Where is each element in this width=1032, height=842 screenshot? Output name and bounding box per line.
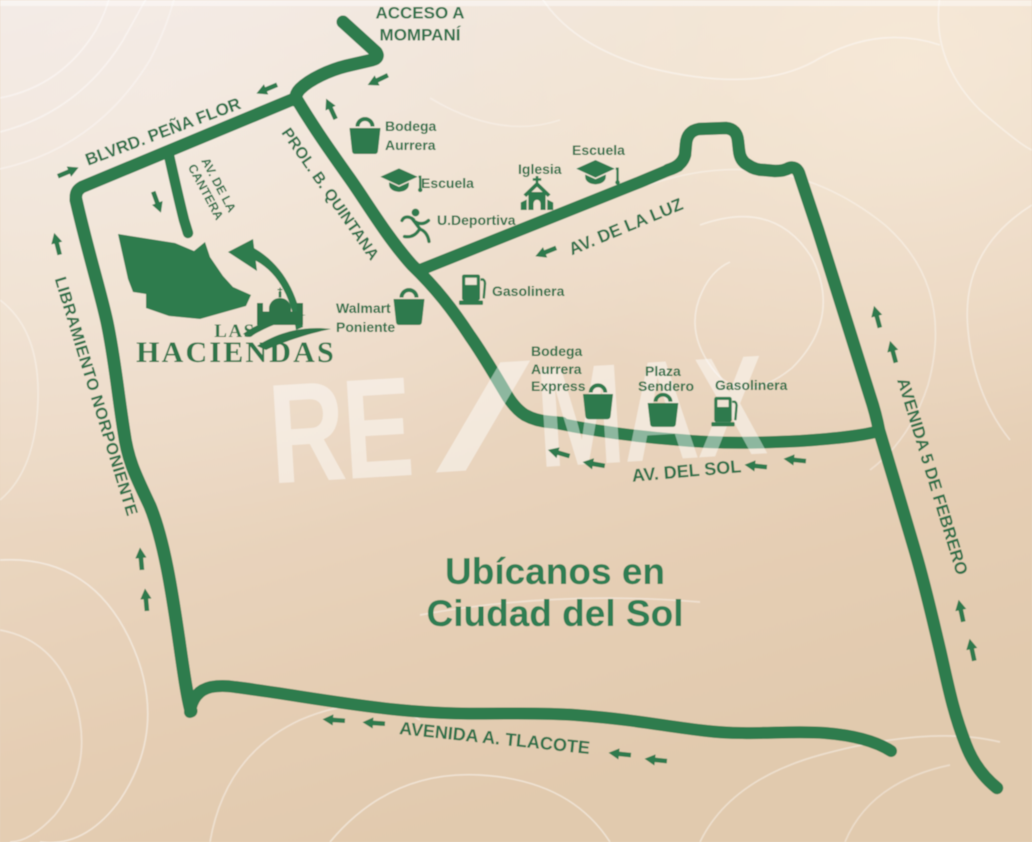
svg-text:Ubícanos en: Ubícanos en xyxy=(445,551,665,592)
svg-text:Gasolinera: Gasolinera xyxy=(492,283,565,299)
svg-text:Escuela: Escuela xyxy=(421,175,474,191)
svg-text:U.Deportiva: U.Deportiva xyxy=(437,212,516,228)
svg-text:Ciudad del Sol: Ciudad del Sol xyxy=(427,593,684,634)
svg-text:Bodega: Bodega xyxy=(385,118,437,134)
svg-text:MOMPANÍ: MOMPANÍ xyxy=(380,26,462,45)
svg-text:ACCESO A: ACCESO A xyxy=(375,4,464,23)
svg-text:Gasolinera: Gasolinera xyxy=(715,377,788,393)
svg-text:HACIENDAS: HACIENDAS xyxy=(136,336,336,369)
svg-text:RE: RE xyxy=(264,348,415,514)
svg-text:Plaza: Plaza xyxy=(645,363,681,379)
svg-text:Walmart: Walmart xyxy=(336,300,391,316)
svg-text:Bodega: Bodega xyxy=(531,343,583,359)
svg-text:Aurrera: Aurrera xyxy=(531,361,582,377)
svg-text:Aurrera: Aurrera xyxy=(385,137,436,153)
svg-text:Poniente: Poniente xyxy=(336,319,395,335)
svg-text:Express: Express xyxy=(531,378,586,394)
svg-text:Iglesia: Iglesia xyxy=(518,161,562,177)
svg-text:Escuela: Escuela xyxy=(572,142,625,158)
svg-text:Sendero: Sendero xyxy=(638,378,694,394)
